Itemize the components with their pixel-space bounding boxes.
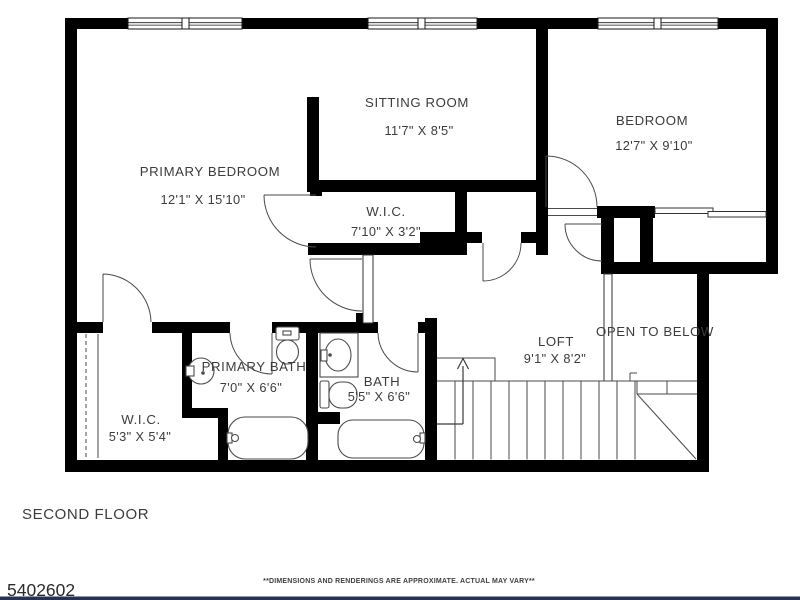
- bathtub-icon: [338, 420, 425, 458]
- room-dims-primary-wic: 5'3" X 5'4": [109, 429, 172, 444]
- floor-plan: PRIMARY BEDROOM 12'1" X 15'10" SITTING R…: [0, 0, 800, 600]
- room-label-loft: LOFT: [538, 334, 574, 349]
- windows: [128, 18, 718, 29]
- room-label-primary-wic: W.I.C.: [121, 412, 161, 427]
- room-dims-sitting-room: 11'7" X 8'5": [384, 123, 453, 138]
- stair-treads: [455, 381, 635, 460]
- room-dims-loft: 9'1" X 8'2": [524, 351, 587, 366]
- room-dims-bath: 5'5" X 6'6": [348, 389, 411, 404]
- door-arc: [378, 333, 418, 372]
- wall-segments: [65, 18, 778, 472]
- sink-icon: [320, 333, 358, 377]
- floor-plan-page: PRIMARY BEDROOM 12'1" X 15'10" SITTING R…: [0, 0, 800, 600]
- door-arc: [264, 195, 316, 247]
- door-arc: [483, 243, 521, 281]
- walls: [65, 18, 778, 472]
- room-dims-primary-bedroom: 12'1" X 15'10": [160, 192, 245, 207]
- window-icon: [368, 18, 477, 29]
- room-dims-bedroom: 12'7" X 9'10": [615, 138, 693, 153]
- stair-up-arrow: [437, 359, 469, 425]
- staircase: [437, 358, 697, 460]
- door-arc: [310, 259, 362, 311]
- footer: SECOND FLOOR **DIMENSIONS AND RENDERINGS…: [0, 506, 800, 600]
- room-label-primary-bedroom: PRIMARY BEDROOM: [140, 164, 280, 179]
- door-threshold: [548, 209, 597, 216]
- floor-title: SECOND FLOOR: [22, 506, 149, 523]
- bathtub-icon: [227, 417, 308, 459]
- room-label-primary-bath: PRIMARY BATH: [202, 359, 307, 374]
- door-arc: [546, 156, 597, 207]
- annotation-open-to-below: OPEN TO BELOW: [596, 324, 714, 339]
- door-leaf: [363, 255, 373, 323]
- sliding-door: [708, 212, 766, 218]
- door-arc: [103, 274, 151, 322]
- disclaimer-text: **DIMENSIONS AND RENDERINGS ARE APPROXIM…: [263, 578, 535, 585]
- room-dims-hall-wic: 7'10" X 3'2": [351, 224, 421, 239]
- window-icon: [128, 18, 242, 29]
- room-label-bedroom: BEDROOM: [616, 113, 688, 128]
- room-label-bath: BATH: [364, 374, 401, 389]
- footer-bar: [0, 597, 800, 600]
- closet-rod-icon: [86, 334, 98, 458]
- sliding-door: [655, 208, 713, 214]
- window-icon: [598, 18, 718, 29]
- room-dims-primary-bath: 7'0" X 6'6": [220, 380, 283, 395]
- room-label-hall-wic: W.I.C.: [366, 204, 406, 219]
- room-label-sitting-room: SITTING ROOM: [365, 95, 469, 110]
- door-arc: [565, 224, 602, 261]
- stair-winder-diagonal: [637, 394, 696, 459]
